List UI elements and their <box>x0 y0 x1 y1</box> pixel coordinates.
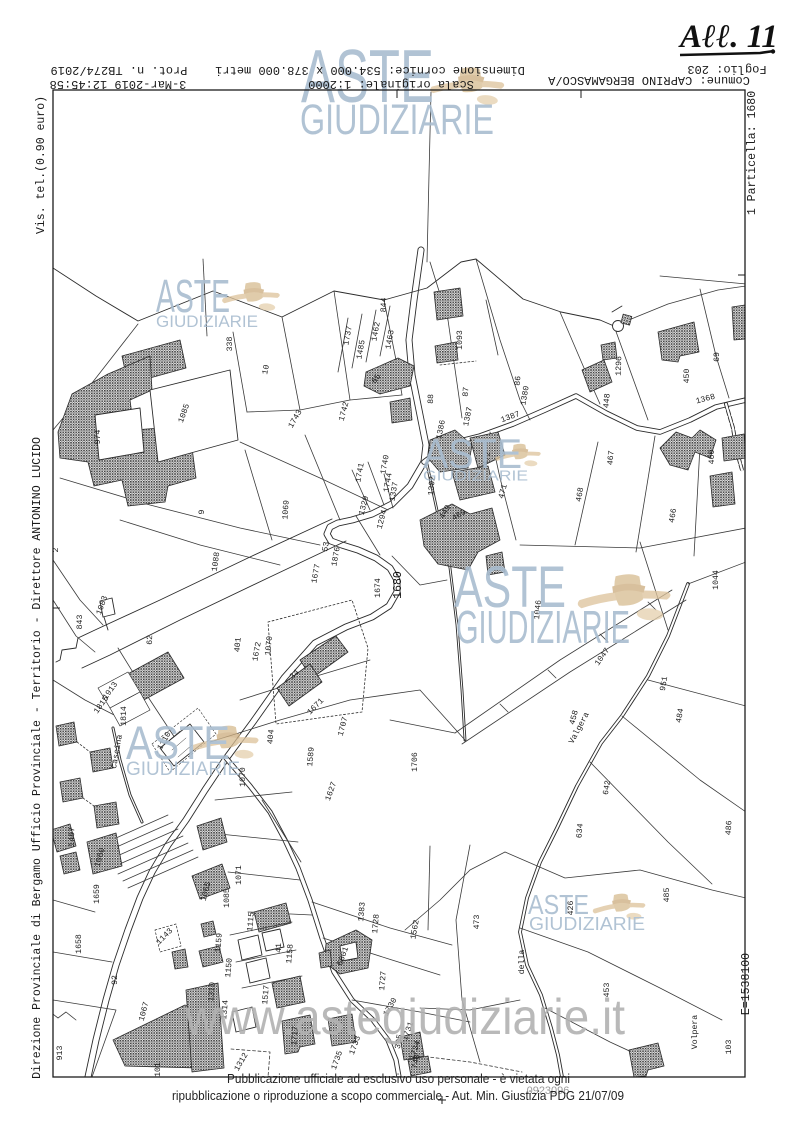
svg-text:1627: 1627 <box>324 781 339 803</box>
svg-text:473: 473 <box>473 915 482 930</box>
svg-text:88: 88 <box>427 394 436 404</box>
svg-text:450: 450 <box>683 369 692 384</box>
svg-text:GIUDIZIARIE: GIUDIZIARIE <box>156 312 258 331</box>
svg-text:E=1538100: E=1538100 <box>740 953 753 1015</box>
svg-text:GIUDIZIARIE: GIUDIZIARIE <box>300 96 494 144</box>
svg-text:Direzione Provinciale di Berga: Direzione Provinciale di Bergamo Ufficio… <box>31 437 44 1079</box>
svg-text:GIUDIZIARIE: GIUDIZIARIE <box>529 914 645 934</box>
svg-text:86: 86 <box>514 375 524 386</box>
svg-text:1467: 1467 <box>68 827 78 847</box>
svg-text:1101: 1101 <box>154 1062 163 1082</box>
svg-text:843: 843 <box>76 615 85 630</box>
svg-text:634: 634 <box>575 823 585 839</box>
svg-text:1044: 1044 <box>712 570 721 590</box>
svg-text:1677: 1677 <box>310 563 322 584</box>
svg-text:Prot. n. TB274/2019: Prot. n. TB274/2019 <box>51 63 188 77</box>
svg-text:62: 62 <box>146 635 155 645</box>
svg-text:467: 467 <box>606 450 616 466</box>
svg-text:1741: 1741 <box>354 462 366 483</box>
svg-text:Pubblicazione ufficiale ad esc: Pubblicazione ufficiale ad esclusivo uso… <box>227 1072 570 1086</box>
svg-text:1069: 1069 <box>281 500 291 520</box>
svg-text:1 Particella: 1680: 1 Particella: 1680 <box>746 91 759 215</box>
svg-text:1680: 1680 <box>392 571 405 599</box>
svg-text:ripubblicazione o riproduzione: ripubblicazione o riproduzione a scopo c… <box>172 1089 624 1103</box>
svg-text:486: 486 <box>725 820 735 835</box>
svg-text:471: 471 <box>497 483 510 500</box>
svg-text:1672: 1672 <box>251 641 263 662</box>
svg-text:1383: 1383 <box>357 902 368 922</box>
svg-text:1463: 1463 <box>384 329 396 350</box>
svg-text:Volpera: Volpera <box>690 1015 700 1049</box>
svg-text:Aℓℓ. 11: Aℓℓ. 11 <box>678 19 778 55</box>
svg-text:Comune: CAPRINO BERGAMASCO/A: Comune: CAPRINO BERGAMASCO/A <box>547 73 749 87</box>
svg-text:69: 69 <box>713 352 722 362</box>
svg-text:Scala originale: 1:2000: Scala originale: 1:2000 <box>308 77 474 91</box>
svg-text:1143: 1143 <box>155 927 175 947</box>
svg-text:1070: 1070 <box>239 767 248 787</box>
svg-text:844: 844 <box>380 297 390 312</box>
svg-text:www.astegiudiziarie.it: www.astegiudiziarie.it <box>184 989 625 1045</box>
svg-text:1728: 1728 <box>371 914 382 934</box>
svg-text:404: 404 <box>266 729 276 745</box>
svg-text:974: 974 <box>94 430 103 445</box>
svg-text:1093: 1093 <box>456 330 465 350</box>
svg-text:338: 338 <box>226 337 235 352</box>
svg-text:53: 53 <box>321 541 332 552</box>
svg-text:Vis. tel.(0.90 euro): Vis. tel.(0.90 euro) <box>35 96 48 234</box>
svg-text:103: 103 <box>725 1040 734 1055</box>
svg-text:1876: 1876 <box>330 546 342 567</box>
svg-text:642: 642 <box>602 780 613 796</box>
svg-text:485: 485 <box>663 888 672 903</box>
svg-text:466: 466 <box>668 508 679 524</box>
svg-text:3-Mar-2019 12:45:58: 3-Mar-2019 12:45:58 <box>50 77 187 91</box>
svg-text:1085: 1085 <box>223 888 232 908</box>
svg-text:448: 448 <box>602 393 612 409</box>
svg-text:1070: 1070 <box>264 636 275 657</box>
svg-text:951: 951 <box>659 676 670 692</box>
svg-text:460: 460 <box>708 450 717 465</box>
svg-text:Dimensione cornice: 534.000 x: Dimensione cornice: 534.000 x 378.000 me… <box>215 63 525 77</box>
svg-text:1659: 1659 <box>93 884 102 904</box>
svg-text:484: 484 <box>675 708 686 724</box>
svg-text:1671: 1671 <box>306 697 326 717</box>
svg-text:1462: 1462 <box>370 321 382 342</box>
svg-text:913: 913 <box>56 1046 65 1061</box>
svg-text:1088: 1088 <box>211 551 223 572</box>
svg-text:1071: 1071 <box>235 865 244 885</box>
svg-text:401: 401 <box>233 637 243 653</box>
svg-text:GIUDIZIARIE: GIUDIZIARIE <box>126 759 240 780</box>
svg-text:1159: 1159 <box>214 933 225 953</box>
svg-text:1115: 1115 <box>246 912 257 932</box>
svg-text:1368: 1368 <box>695 393 716 407</box>
svg-text:1312: 1312 <box>233 1051 251 1073</box>
svg-text:1562: 1562 <box>409 919 421 940</box>
svg-text:1658: 1658 <box>75 934 84 954</box>
svg-text:1742: 1742 <box>338 401 352 422</box>
svg-text:1589: 1589 <box>306 747 317 767</box>
svg-text:41: 41 <box>275 943 284 953</box>
svg-text:1296: 1296 <box>615 356 625 376</box>
svg-text:1735: 1735 <box>330 1050 345 1072</box>
svg-text:1674: 1674 <box>374 578 383 598</box>
svg-text:1737: 1737 <box>342 325 354 346</box>
svg-text:1727: 1727 <box>378 971 389 991</box>
svg-text:1067: 1067 <box>138 1001 152 1022</box>
svg-text:9: 9 <box>198 509 207 514</box>
svg-text:1740: 1740 <box>379 454 391 475</box>
svg-text:1743: 1743 <box>287 408 305 430</box>
svg-text:1707: 1707 <box>337 716 351 737</box>
svg-text:10: 10 <box>261 364 272 376</box>
svg-text:GIUDIZIARIE: GIUDIZIARIE <box>456 601 630 653</box>
svg-text:1380: 1380 <box>519 385 531 406</box>
svg-text:87: 87 <box>462 386 472 397</box>
svg-text:1158: 1158 <box>285 944 296 964</box>
svg-text:della: della <box>517 950 527 975</box>
svg-text:1706: 1706 <box>411 752 420 772</box>
svg-text:1150: 1150 <box>224 958 235 978</box>
svg-text:468: 468 <box>575 487 586 503</box>
svg-text:1387: 1387 <box>462 406 475 427</box>
svg-text:GIUDIZIARIE: GIUDIZIARIE <box>423 468 528 485</box>
svg-text:92: 92 <box>111 975 120 985</box>
svg-text:1485: 1485 <box>355 339 367 360</box>
